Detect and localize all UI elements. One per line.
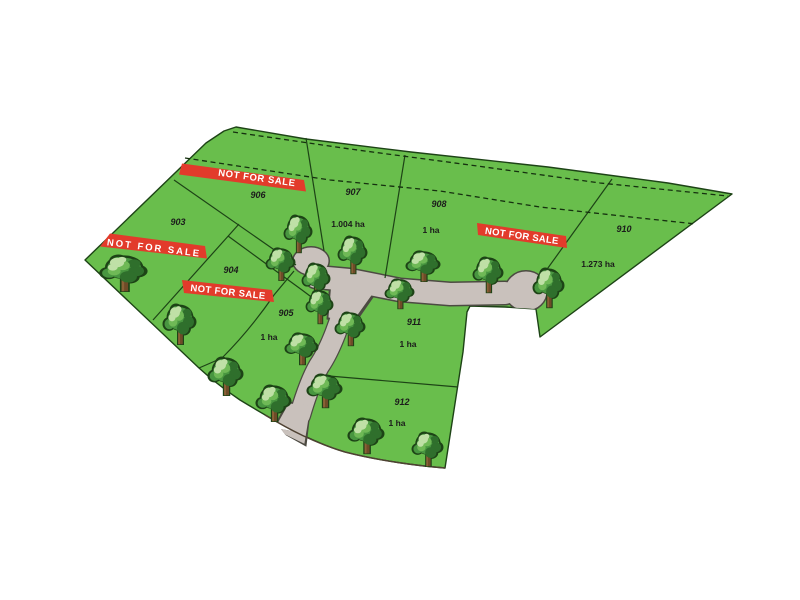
svg-text:906: 906 [250, 190, 266, 200]
svg-text:905: 905 [278, 308, 294, 318]
svg-text:912: 912 [394, 397, 409, 407]
svg-text:904: 904 [223, 265, 238, 275]
svg-text:903: 903 [170, 217, 185, 227]
svg-text:1 ha: 1 ha [388, 418, 405, 428]
svg-text:908: 908 [431, 199, 446, 209]
svg-text:907: 907 [345, 187, 361, 197]
svg-text:1 ha: 1 ha [399, 339, 416, 349]
svg-text:1.004 ha: 1.004 ha [331, 219, 365, 229]
svg-text:910: 910 [616, 224, 631, 234]
svg-text:1 ha: 1 ha [260, 332, 277, 342]
svg-text:1 ha: 1 ha [422, 225, 439, 235]
svg-text:1.273 ha: 1.273 ha [581, 259, 615, 269]
svg-text:911: 911 [407, 317, 421, 327]
